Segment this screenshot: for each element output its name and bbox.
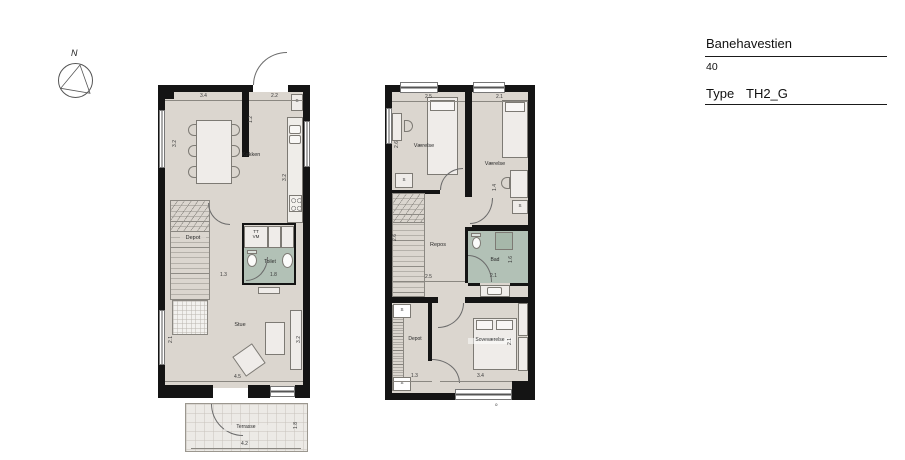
dim-living-width: 4.5 <box>234 375 241 380</box>
bedroom-partition <box>465 85 472 197</box>
kitchen-stove <box>289 195 302 212</box>
dim-line <box>392 381 432 382</box>
hall-cabinet <box>268 226 281 248</box>
dim-stair-depth: 2.6 <box>393 234 398 241</box>
chair-icon <box>188 124 197 136</box>
staircase-winders <box>170 200 210 232</box>
depot-partition <box>428 303 432 361</box>
window-living-bottom <box>270 386 295 397</box>
dim-landing-width: 2.5 <box>425 275 432 280</box>
window-bedroom-left <box>400 82 438 93</box>
wall-corner-block <box>512 381 535 400</box>
washer-line2: VM <box>253 234 260 239</box>
understairs-storage <box>172 300 208 335</box>
dim-bedroom-right-width: 2.1 <box>496 95 503 100</box>
project-title: Banehavestien <box>706 36 792 51</box>
dim-line <box>165 100 242 101</box>
first-floor-plan: Værelse S Værelse S Repos Bad S S Depot … <box>385 85 535 400</box>
toilet-wall-right <box>294 223 296 285</box>
wall-bottom-2 <box>248 385 270 398</box>
bath-wall-bottom-1 <box>468 283 480 286</box>
washer-closet-label: TT VM <box>244 230 268 239</box>
terrace-door-arc <box>211 404 243 436</box>
living-label: Stue <box>228 322 252 328</box>
unit-number: 40 <box>706 61 718 73</box>
toilet-wall-top <box>242 223 296 225</box>
dim-line <box>392 101 465 102</box>
kitchen-sink <box>289 125 301 134</box>
closet-label: S <box>395 178 413 183</box>
closet-label: S <box>512 204 528 209</box>
closet-label: S <box>393 381 411 386</box>
wall-top-left <box>158 85 253 92</box>
staircase-winders <box>392 193 425 223</box>
bedroom-left-label: Værelse <box>409 143 439 149</box>
compass-needle-icon <box>58 63 93 98</box>
type-divider <box>705 104 887 105</box>
dim-line <box>249 100 303 101</box>
dim-bedroom-left-depth: 2.6 <box>395 141 400 148</box>
dim-entry-width: 2.2 <box>271 94 278 99</box>
dim-bath-width: 2.1 <box>490 274 497 279</box>
bedroom-right-label: Værelse <box>480 161 510 167</box>
wall-bottom-1 <box>158 385 213 398</box>
kitchen-sink-2 <box>289 135 301 144</box>
chair-icon <box>188 166 197 178</box>
radiator <box>258 287 280 294</box>
bath-label: Bad <box>485 258 505 264</box>
north-label: N <box>71 48 78 58</box>
dim-hall-width: 1.3 <box>220 273 227 278</box>
dim-line <box>472 101 528 102</box>
dim-kitchen-length: 3.2 <box>283 174 288 181</box>
window-living-left <box>159 310 165 365</box>
landing-label: Repos <box>426 242 450 248</box>
dining-table <box>196 120 232 184</box>
dim-storage-width: 1.3 <box>411 374 418 379</box>
wall-right <box>528 85 535 400</box>
title-block: Banehavestien 40 Type TH2_G <box>705 30 890 110</box>
entrance-door-arc <box>253 52 287 85</box>
window-bedroom-right <box>473 82 505 93</box>
toilet-wc-tank <box>247 250 257 254</box>
depot-label: Depot <box>404 337 426 343</box>
master-bedroom-label: Soveværelse <box>468 338 512 344</box>
desk-right <box>510 170 528 198</box>
bed-pillow <box>496 320 513 330</box>
toilet-wall-bottom <box>242 283 296 285</box>
bath-wc-icon <box>472 237 481 249</box>
window-master-bottom <box>455 389 512 400</box>
dim-master-width: 3.4 <box>477 374 484 379</box>
understairs-depot-label: Depot <box>180 235 206 241</box>
dim-entry-depth: 1.2 <box>249 116 254 123</box>
dim-bath-depth: 1.6 <box>509 256 514 263</box>
wardrobe <box>518 303 528 336</box>
terrace-label: Terrasse <box>224 425 268 431</box>
wardrobe-2 <box>518 337 528 371</box>
dim-living-window: 2.1 <box>169 336 174 343</box>
north-compass: N <box>50 44 100 104</box>
bed-pillow <box>476 320 493 330</box>
dim-terrace-width: 4.2 <box>241 442 248 447</box>
dim-line <box>392 281 465 282</box>
kitchen-label: Køkken <box>236 152 266 158</box>
chair-icon <box>501 177 510 189</box>
dim-line <box>165 381 303 382</box>
type-label: Type <box>706 86 734 101</box>
dim-master-depth: 2.1 <box>508 338 513 345</box>
type-value: TH2_G <box>746 86 788 101</box>
dim-dining-depth: 3.2 <box>173 140 178 147</box>
dim-living-depth: 3.2 <box>297 336 302 343</box>
hall-cabinet-2 <box>281 226 294 248</box>
shower-tray <box>495 232 513 250</box>
window-dining <box>159 110 165 168</box>
dim-toilet-width: 1.8 <box>270 273 277 278</box>
toilet-label: Toilet <box>256 260 284 266</box>
dim-terrace-depth: 1.8 <box>294 422 299 429</box>
coffee-table <box>265 322 285 355</box>
bath-wall-bottom-2 <box>510 283 528 286</box>
chair-icon <box>188 145 197 157</box>
bed-pillow <box>505 102 525 112</box>
window-kitchen <box>304 121 310 167</box>
wall-bottom-3 <box>295 385 310 398</box>
dim-dining-width: 3.4 <box>200 94 207 99</box>
dim-bedroom-left-width: 2.5 <box>425 95 432 100</box>
window-bedroom-left-side <box>386 108 392 144</box>
desk-left <box>392 113 402 141</box>
closet-label: S <box>393 308 411 313</box>
dim-bedroom-right-inner: 1.4 <box>493 184 498 191</box>
section-marker: o <box>495 402 498 407</box>
dim-line <box>440 381 512 382</box>
ground-floor-plan: S Køkken Depot TT VM Toilet Stue 3.4 2.2… <box>158 85 310 400</box>
bath-basin <box>487 287 502 295</box>
dim-line <box>191 448 301 449</box>
terrace-area: Terrasse 4.2 1.8 <box>185 403 308 452</box>
title-divider <box>705 56 887 57</box>
bed-pillow <box>430 100 455 111</box>
